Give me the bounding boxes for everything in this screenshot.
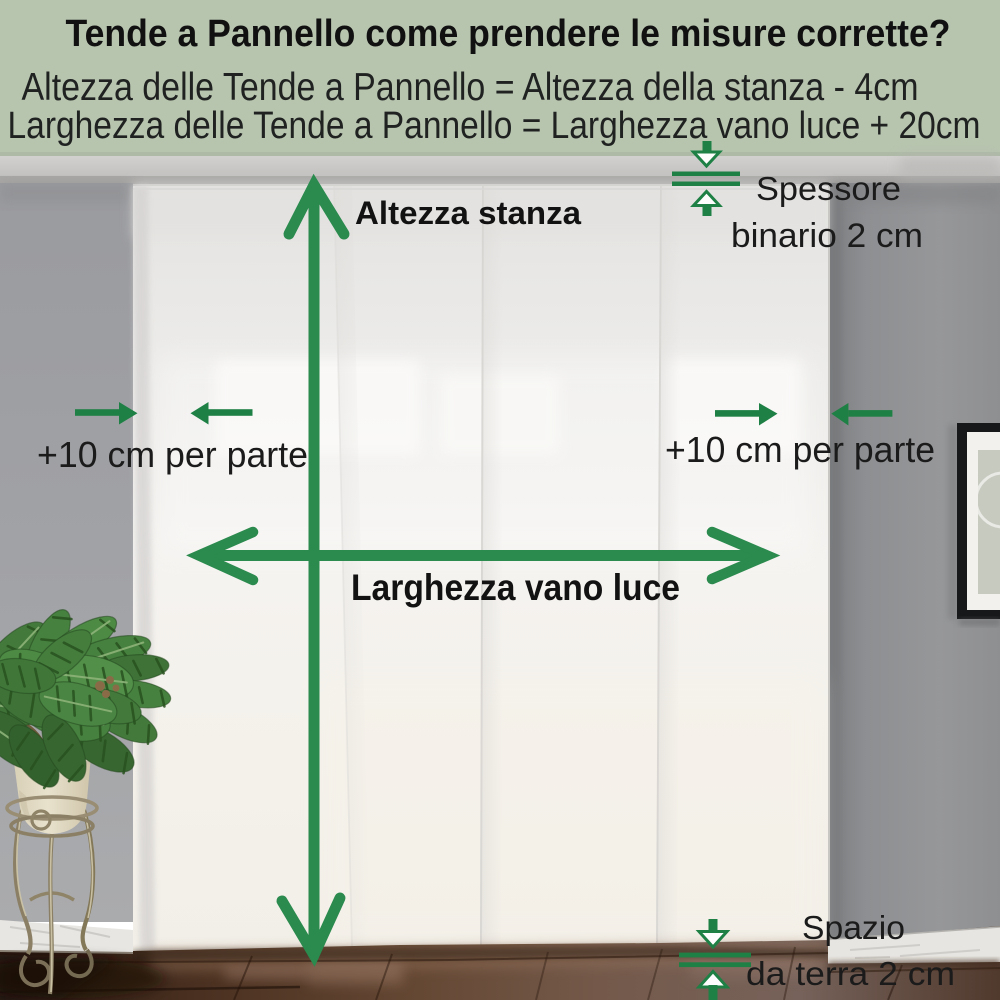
svg-text:+10 cm per parte: +10 cm per parte: [37, 434, 308, 475]
svg-text:+10 cm per parte: +10 cm per parte: [665, 429, 935, 470]
svg-text:Altezza delle Tende a Pannello: Altezza delle Tende a Pannello = Altezza…: [22, 66, 919, 109]
svg-text:Larghezza vano luce: Larghezza vano luce: [351, 567, 680, 608]
svg-text:Altezza stanza: Altezza stanza: [355, 195, 581, 231]
svg-text:Larghezza delle Tende a Pannel: Larghezza delle Tende a Pannello = Largh…: [8, 105, 981, 147]
svg-text:da terra 2 cm: da terra 2 cm: [746, 956, 955, 993]
svg-text:Spessore: Spessore: [756, 170, 901, 207]
svg-text:Tende a Pannello come prendere: Tende a Pannello come prendere le misure…: [66, 13, 951, 55]
svg-text:Spazio: Spazio: [802, 909, 905, 946]
svg-text:binario 2 cm: binario 2 cm: [731, 217, 923, 255]
